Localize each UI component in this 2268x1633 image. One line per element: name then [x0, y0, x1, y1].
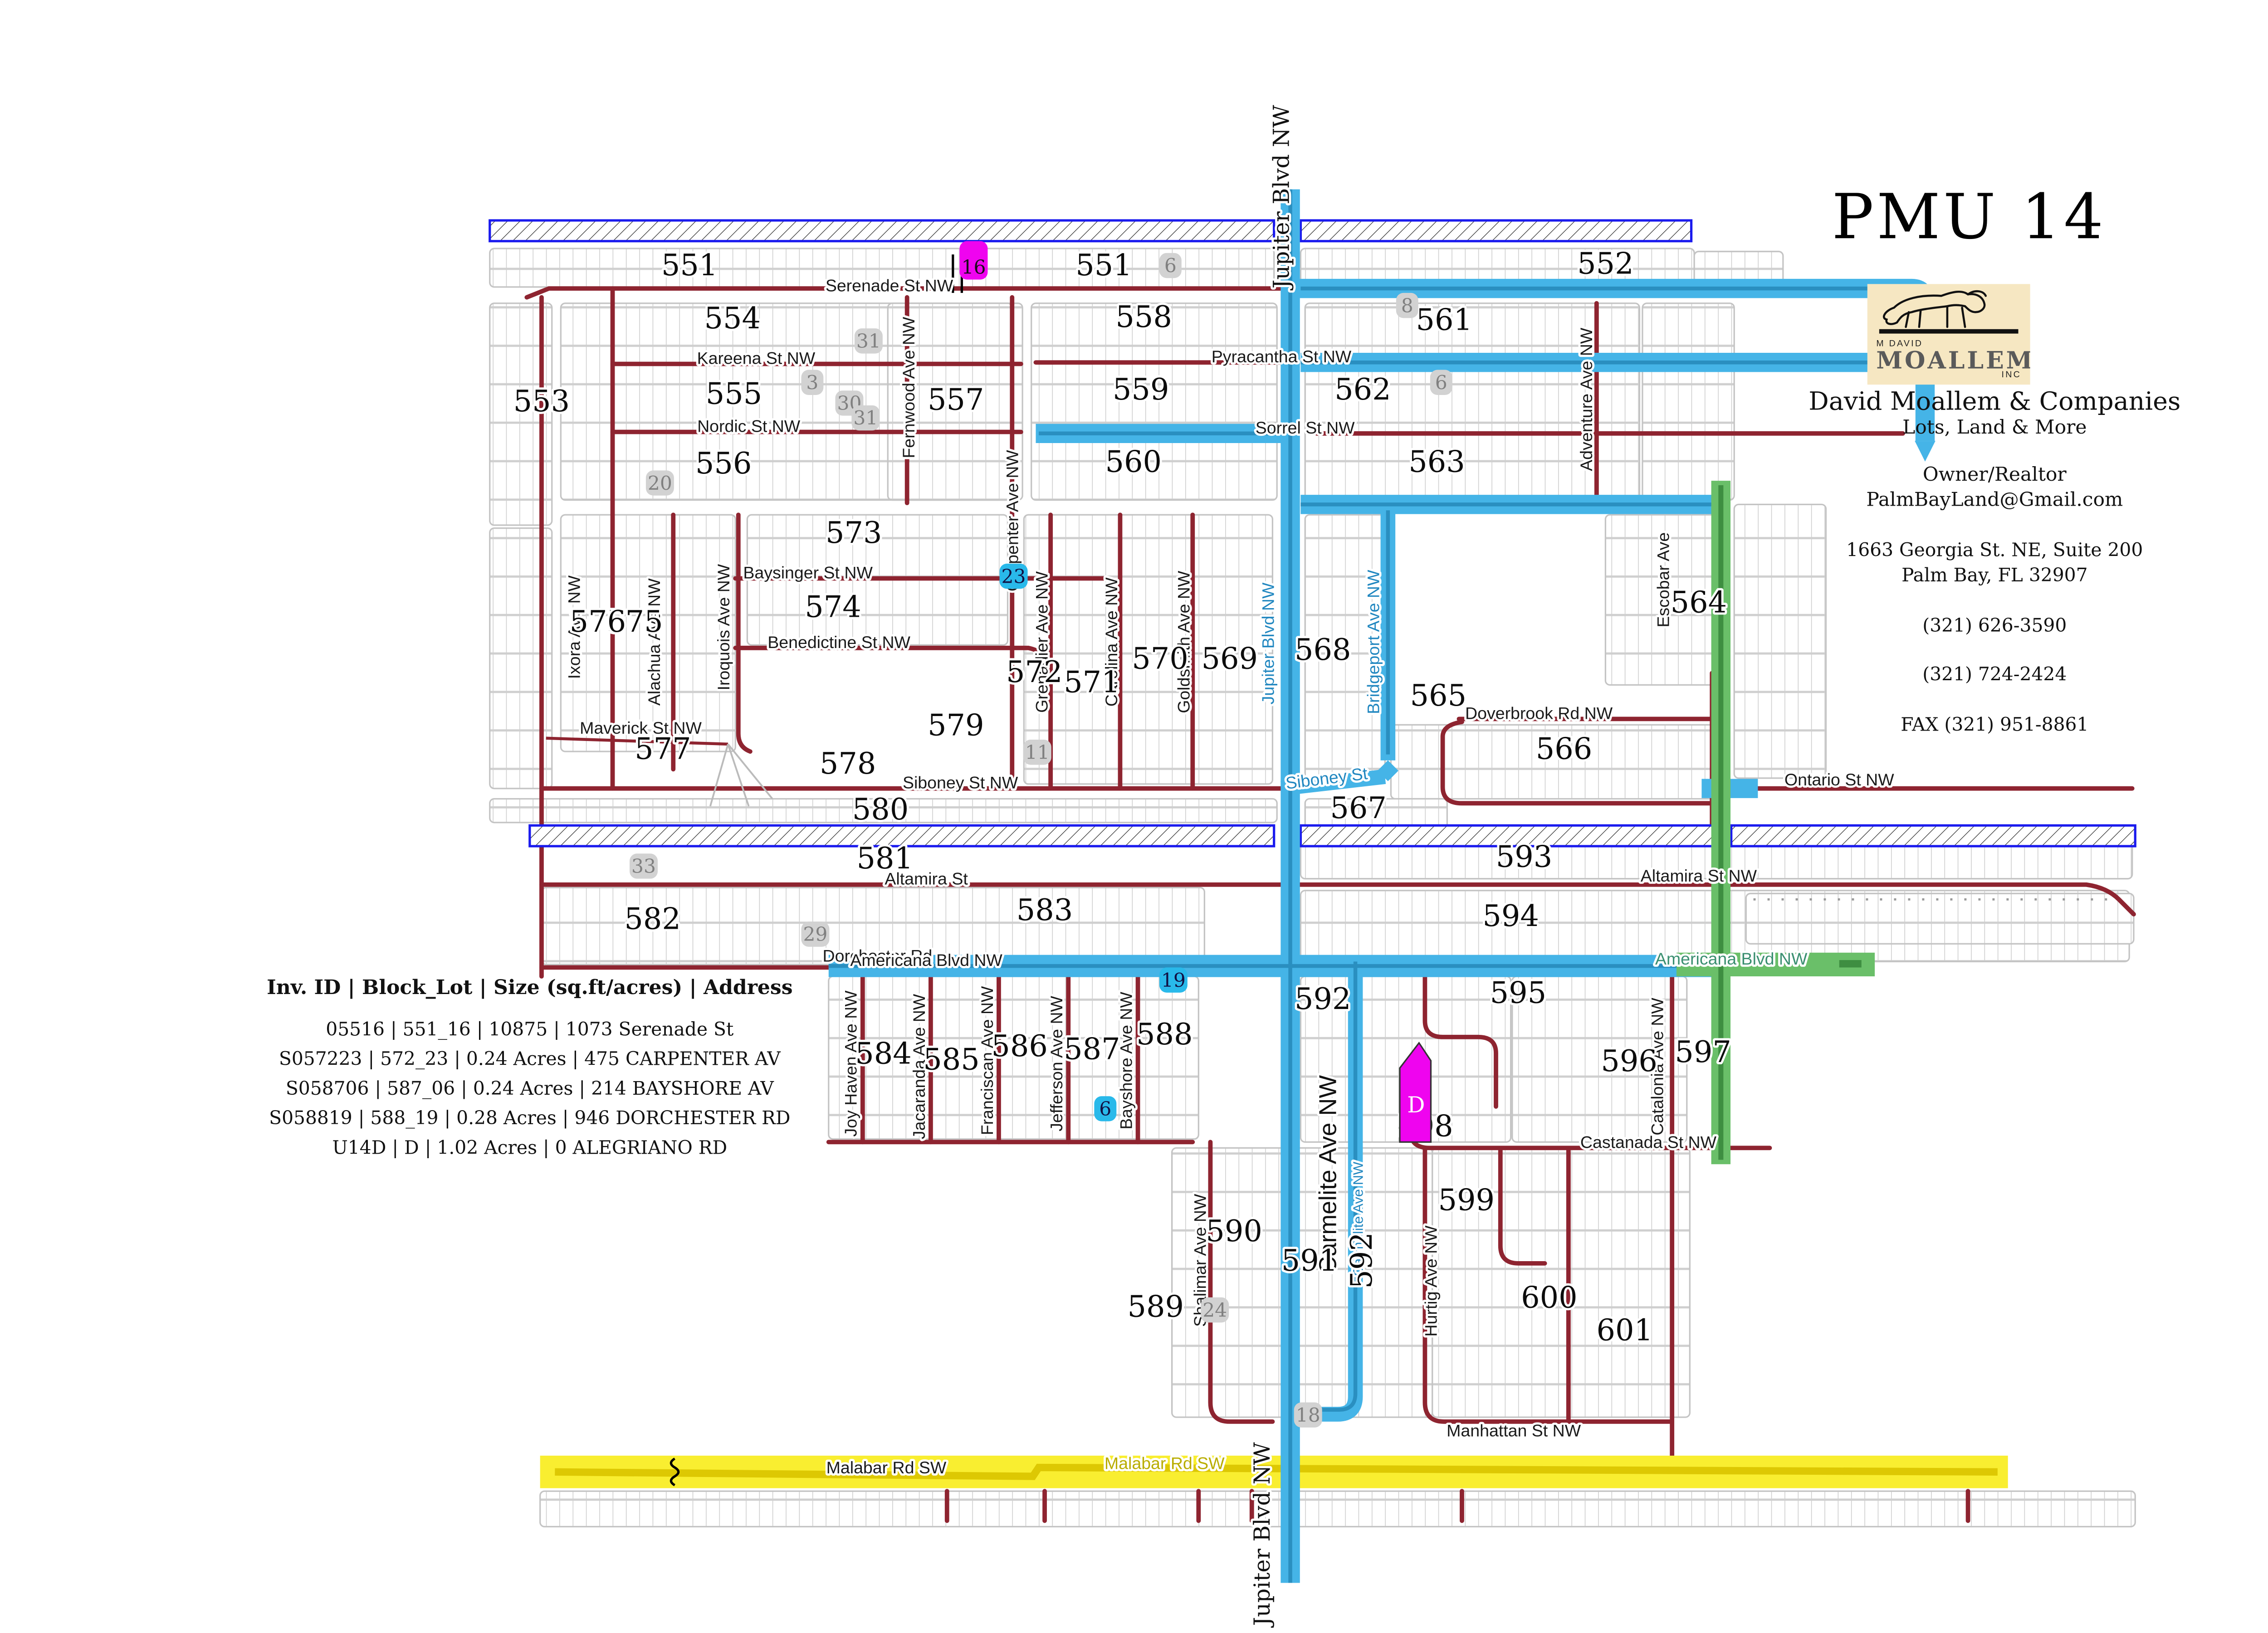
phone-1[interactable]: (321) 626-3590 — [1922, 614, 2067, 636]
street-label: Jefferson Ave NW — [1047, 995, 1066, 1131]
block-number: 551 — [1075, 248, 1132, 283]
block-number: 556 — [695, 446, 752, 481]
block-number: 552 — [1577, 246, 1634, 281]
street-label: Jupiter Blvd NW — [1268, 105, 1294, 291]
phone-2[interactable]: (321) 724-2424 — [1922, 663, 2067, 685]
street-label: Fernwood Ave NW — [899, 317, 918, 458]
page-title: PMU 14 — [1832, 180, 2106, 253]
block-number: 593 — [1496, 840, 1553, 874]
lot-marker-label: 6 — [1435, 371, 1447, 394]
inventory-row[interactable]: S058706 | 587_06 | 0.24 Acres | 214 BAYS… — [264, 1074, 796, 1103]
street-label: Sorrel St NW — [1256, 418, 1355, 437]
company-logo: M DAVID MOALLEM INC — [1867, 284, 2030, 385]
street-label: Nordic St NW — [697, 417, 801, 436]
block-number: 573 — [826, 516, 882, 550]
inventory-row[interactable]: 05516 | 551_16 | 10875 | 1073 Serenade S… — [264, 1015, 796, 1044]
block-number: 589 — [1127, 1289, 1184, 1324]
block-number: 559 — [1113, 372, 1169, 407]
street-label: Baysinger St NW — [743, 563, 873, 582]
block-number: 554 — [704, 301, 761, 336]
block-number: 577 — [635, 731, 691, 766]
lot-marker-label: 11 — [1025, 741, 1050, 763]
block-number: 587 — [1064, 1032, 1120, 1067]
block-number: 562 — [1334, 372, 1391, 407]
inventory-row[interactable]: S057223 | 572_23 | 0.24 Acres | 475 CARP… — [264, 1044, 796, 1074]
street-label: Serenade St NW — [826, 276, 953, 295]
parcel-block — [1642, 303, 1734, 500]
block-number: 560 — [1105, 445, 1162, 479]
lot-marker-label: 33 — [631, 855, 656, 877]
block-number: 570 — [1132, 641, 1188, 676]
street-label: Americana Blvd NW — [1655, 949, 1808, 968]
block-number: 576 — [570, 604, 626, 639]
lot-marker-label: 6 — [1099, 1098, 1111, 1120]
block-number: 561 — [1416, 302, 1473, 337]
block-number: 555 — [706, 377, 763, 411]
block-number: 553 — [513, 384, 570, 419]
lot-marker-label: 16 — [961, 256, 986, 278]
street-label: Jupiter Blvd NW — [1259, 582, 1278, 704]
lot-marker-label: 31 — [853, 407, 878, 429]
hatched-corridor — [1300, 220, 1691, 241]
hatched-corridor — [1731, 825, 2136, 846]
street-label: Iroquois Ave NW — [714, 564, 733, 690]
inventory-table: Inv. ID | Block_Lot | Size (sq.ft/acres)… — [264, 976, 796, 1163]
street-label: Malabar Rd SW — [826, 1458, 947, 1477]
street-label: Adventure Ave NW — [1577, 327, 1596, 471]
block-number: 578 — [820, 746, 876, 781]
block-number: 580 — [852, 792, 909, 827]
inventory-row[interactable]: S058819 | 588_19 | 0.28 Acres | 946 DORC… — [264, 1104, 796, 1133]
block-number: 592 — [1295, 982, 1351, 1016]
block-number: 568 — [1295, 633, 1351, 667]
address-line2: Palm Bay, FL 32907 — [1901, 564, 2087, 586]
lion-icon — [1876, 287, 2021, 334]
block-number: 566 — [1536, 731, 1593, 766]
owner-role: Owner/Realtor — [1923, 464, 2067, 487]
block-number: 591 — [1281, 1243, 1338, 1278]
block-number: 594 — [1482, 899, 1539, 933]
lot-marker-label: 29 — [803, 923, 827, 946]
block-number: 571 — [1064, 665, 1120, 700]
block-number: 564 — [1671, 585, 1727, 620]
logo-name: MOALLEM — [1876, 349, 2021, 371]
lot-marker-label: 19 — [1161, 969, 1186, 991]
street-label: Ontario St NW — [1784, 770, 1894, 789]
lot-marker-label: 18 — [1296, 1404, 1320, 1426]
block-number: 597 — [1675, 1035, 1731, 1069]
block-number: 551 — [661, 248, 718, 283]
company-name: David Moallem & Companies — [1809, 388, 2180, 417]
block-number: 557 — [928, 383, 984, 417]
block-number: 567 — [1330, 791, 1387, 825]
street-label: Kareena St NW — [697, 348, 816, 367]
block-number: 579 — [928, 708, 984, 742]
block-number: 563 — [1408, 445, 1465, 479]
lot-marker-label: 6 — [1164, 254, 1177, 277]
lot-marker-label: 23 — [1002, 565, 1026, 587]
lot-marker-label: 24 — [1202, 1299, 1227, 1321]
street-label: Hurtig Ave NW — [1421, 1225, 1440, 1337]
email[interactable]: PalmBayLand@Gmail.com — [1866, 490, 2123, 512]
street-label: Malabar Rd SW — [1105, 1453, 1225, 1472]
block-number: 599 — [1438, 1183, 1495, 1217]
lot-marker-label: 20 — [648, 472, 672, 494]
block-number: 590 — [1206, 1214, 1262, 1248]
block-number: 592 — [1344, 1232, 1379, 1289]
lot-marker-label: D — [1407, 1092, 1425, 1118]
block-number: 595 — [1490, 976, 1547, 1010]
block-number: 584 — [855, 1036, 912, 1071]
street-label: Alachua Ave NW — [645, 578, 664, 706]
street-label: Benedictine St NW — [767, 633, 910, 652]
block-number: 572 — [1006, 655, 1063, 689]
company-tagline: Lots, Land & More — [1902, 417, 2087, 439]
parcel-block — [1746, 893, 2134, 944]
block-number: 565 — [1410, 678, 1467, 713]
inventory-header: Inv. ID | Block_Lot | Size (sq.ft/acres)… — [264, 976, 796, 1000]
block-number: 600 — [1521, 1281, 1578, 1315]
lot-marker-label: 31 — [856, 330, 881, 352]
street-label: Manhattan St NW — [1447, 1421, 1581, 1440]
block-number: 582 — [624, 902, 681, 936]
pmu14-plat-sheet: Serenade St NWKareena St NWNordic St NWP… — [0, 0, 2268, 1633]
street-label: Bridgeport Ave NW — [1364, 570, 1383, 714]
street-label: Altamira St NW — [1641, 866, 1757, 885]
parcel-block — [1734, 504, 1826, 778]
street-label: Americana Blvd NW — [850, 951, 1002, 970]
inventory-row[interactable]: U14D | D | 1.02 Acres | 0 ALEGRIANO RD — [264, 1133, 796, 1163]
hatched-corridor — [490, 220, 1274, 241]
parcel-block — [540, 1491, 2136, 1526]
block-number: 581 — [856, 841, 913, 876]
block-number: 596 — [1601, 1044, 1657, 1078]
lot-marker-label: 3 — [806, 371, 818, 394]
block-number: 574 — [805, 590, 861, 624]
fax: FAX (321) 951-8861 — [1901, 713, 2088, 735]
block-number: 601 — [1597, 1313, 1653, 1347]
lot-marker-label: 8 — [1401, 294, 1413, 317]
street-label: Pyracantha St NW — [1212, 347, 1352, 366]
street-label: Escobar Ave — [1654, 532, 1673, 628]
block-number: 586 — [991, 1029, 1048, 1063]
street-label: Doverbrook Rd NW — [1465, 703, 1613, 722]
block-number: 588 — [1136, 1017, 1193, 1052]
address-line1: 1663 Georgia St. NE, Suite 200 — [1846, 538, 2143, 561]
street-label: Jupiter Blvd NW — [1249, 1442, 1275, 1628]
street-label: Siboney St NW — [903, 773, 1018, 792]
street-label: Grenadier Ave NW — [1032, 571, 1051, 713]
block-number: 569 — [1202, 641, 1258, 676]
block-number: 585 — [923, 1042, 980, 1077]
block-number: 583 — [1017, 893, 1073, 927]
block-number: 558 — [1115, 300, 1172, 334]
